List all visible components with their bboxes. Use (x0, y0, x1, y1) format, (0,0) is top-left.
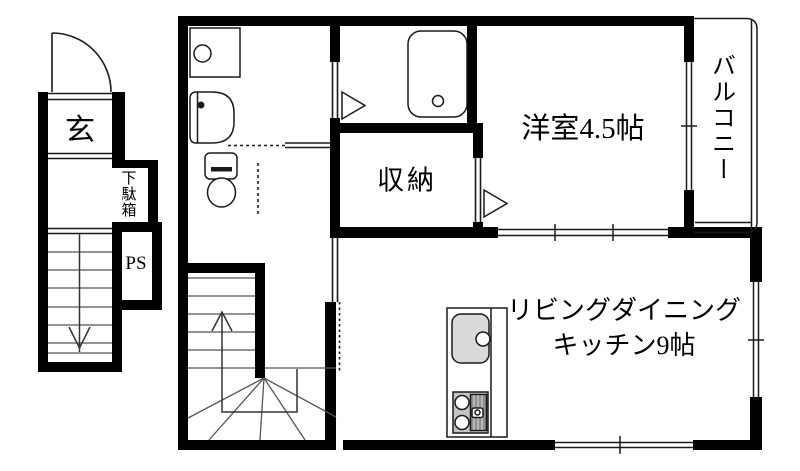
dashed-openings (228, 146, 340, 373)
faucet-icon (476, 332, 490, 346)
pipe-space-label: PS (125, 253, 146, 275)
wall (750, 397, 762, 450)
wall (112, 92, 125, 160)
wall (38, 362, 122, 372)
wall (330, 118, 340, 237)
wall (152, 222, 162, 310)
entrance-door-arc (52, 33, 111, 92)
wall (330, 26, 340, 62)
wall (178, 263, 265, 273)
balcony-label: バルコニー (704, 53, 739, 183)
toilet (205, 153, 237, 207)
entrance-stairs (48, 234, 112, 353)
entrance-label: 玄 (65, 105, 95, 149)
wall (325, 302, 336, 450)
ldk-label: リビングダイニング キッチン9帖 (507, 293, 741, 363)
drain-icon (433, 96, 444, 107)
closet-door-icon (484, 190, 507, 217)
stove (453, 392, 488, 433)
burner-icon (455, 396, 469, 410)
ldk-label-line1: リビングダイニング (507, 293, 741, 328)
floorplan-canvas (0, 0, 800, 471)
floorplan: 玄 下駄箱 PS 収納 洋室4.5帖 バルコニー リビングダイニング キッチン9… (0, 0, 800, 471)
wall (684, 16, 694, 62)
wall (343, 440, 555, 450)
wall (178, 440, 325, 450)
drain-icon (194, 45, 211, 62)
wall (112, 300, 162, 310)
bathroom-door-icon (342, 92, 365, 119)
faucet-icon (198, 102, 203, 107)
kitchen-counter (447, 308, 507, 437)
wall (473, 222, 483, 238)
wall (330, 227, 498, 238)
wall (330, 123, 477, 133)
storage-label: 収納 (377, 159, 437, 198)
western-room-label: 洋室4.5帖 (521, 105, 644, 147)
bathtub (408, 31, 467, 117)
ldk-label-line2: キッチン9帖 (507, 328, 741, 363)
wall (148, 160, 158, 225)
wall (178, 16, 694, 26)
wall (255, 263, 265, 378)
wall (38, 92, 48, 372)
wall (473, 123, 483, 158)
shoe-cabinet-label: 下駄箱 (118, 170, 139, 218)
wall (112, 222, 122, 310)
walls (38, 16, 762, 450)
vanity-unit (190, 92, 234, 143)
wall (112, 310, 122, 372)
wall (467, 16, 477, 133)
burner-icon (455, 416, 469, 430)
wall (178, 16, 188, 450)
